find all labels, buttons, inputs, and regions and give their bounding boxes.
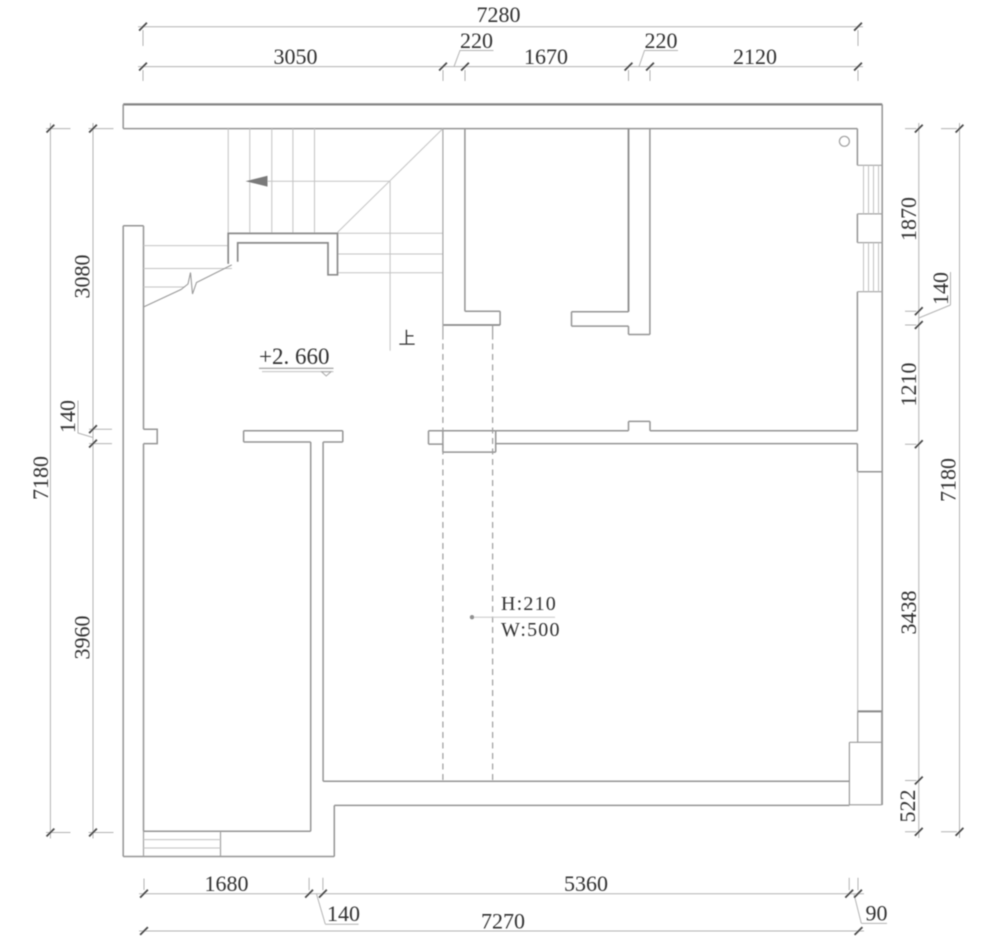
svg-text:1680: 1680 [205, 871, 249, 896]
svg-text:7270: 7270 [481, 909, 525, 934]
svg-text:2120: 2120 [733, 44, 777, 69]
svg-text:3050: 3050 [274, 44, 318, 69]
svg-text:7280: 7280 [477, 2, 521, 27]
svg-text:3080: 3080 [70, 255, 95, 299]
svg-text:5360: 5360 [564, 871, 608, 896]
svg-text:90: 90 [866, 901, 888, 926]
svg-text:3960: 3960 [70, 616, 95, 660]
svg-text:7180: 7180 [28, 456, 53, 500]
svg-text:220: 220 [460, 28, 493, 53]
svg-text:1210: 1210 [896, 363, 921, 407]
svg-text:140: 140 [928, 272, 953, 305]
svg-text:140: 140 [55, 400, 80, 433]
svg-text:上: 上 [399, 329, 416, 348]
svg-text:H:210: H:210 [501, 593, 557, 615]
svg-text:+2. 660: +2. 660 [259, 344, 329, 369]
svg-text:W:500: W:500 [501, 619, 561, 641]
svg-text:7180: 7180 [936, 458, 961, 502]
svg-text:1670: 1670 [524, 44, 568, 69]
svg-text:1870: 1870 [896, 197, 921, 241]
svg-text:140: 140 [327, 901, 360, 926]
svg-text:522: 522 [895, 790, 920, 823]
svg-text:220: 220 [645, 28, 678, 53]
svg-text:3438: 3438 [896, 591, 921, 635]
